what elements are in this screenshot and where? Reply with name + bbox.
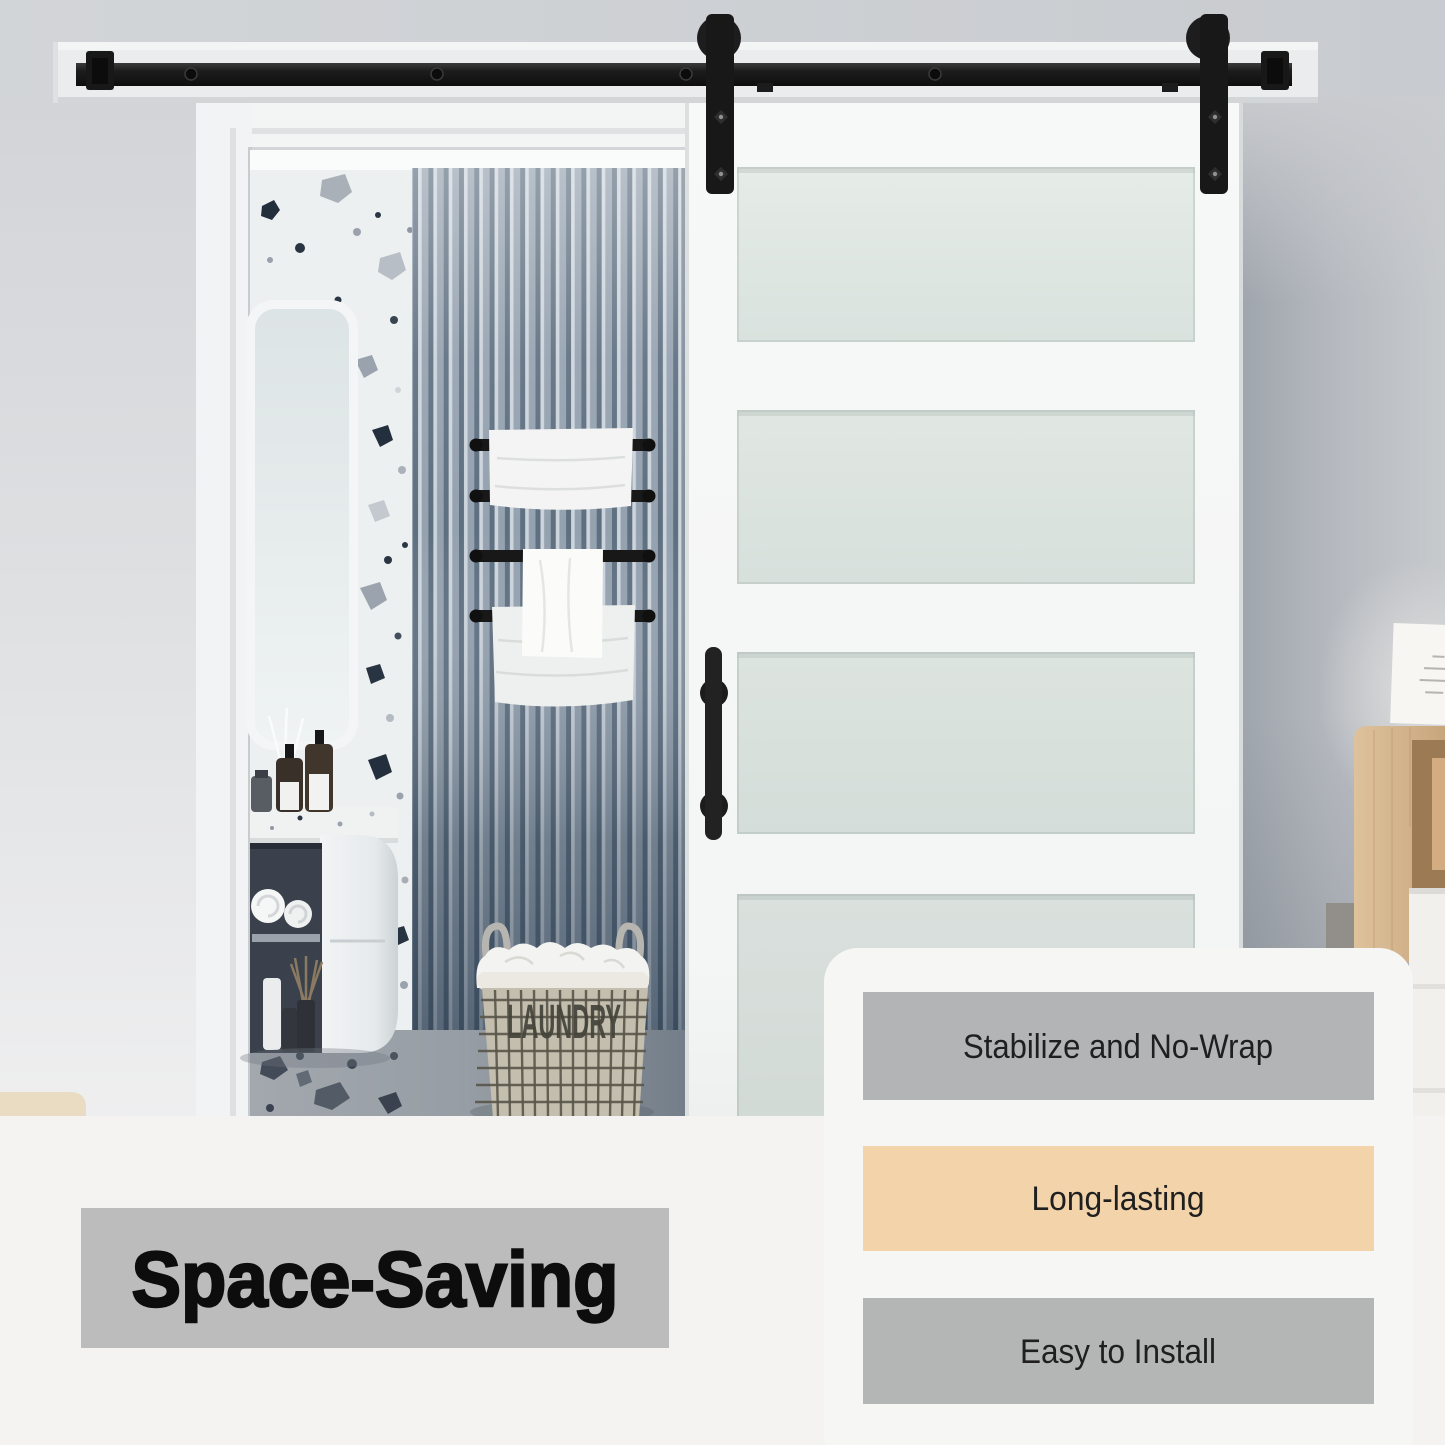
svg-text:Long-lasting: Long-lasting	[1032, 1180, 1205, 1218]
svg-text:Space-Saving: Space-Saving	[132, 1235, 619, 1323]
svg-text:LAUNDRY: LAUNDRY	[507, 996, 621, 1049]
svg-text:Easy to Install: Easy to Install	[1020, 1333, 1216, 1371]
svg-text:Stabilize and No-Wrap: Stabilize and No-Wrap	[963, 1028, 1273, 1066]
